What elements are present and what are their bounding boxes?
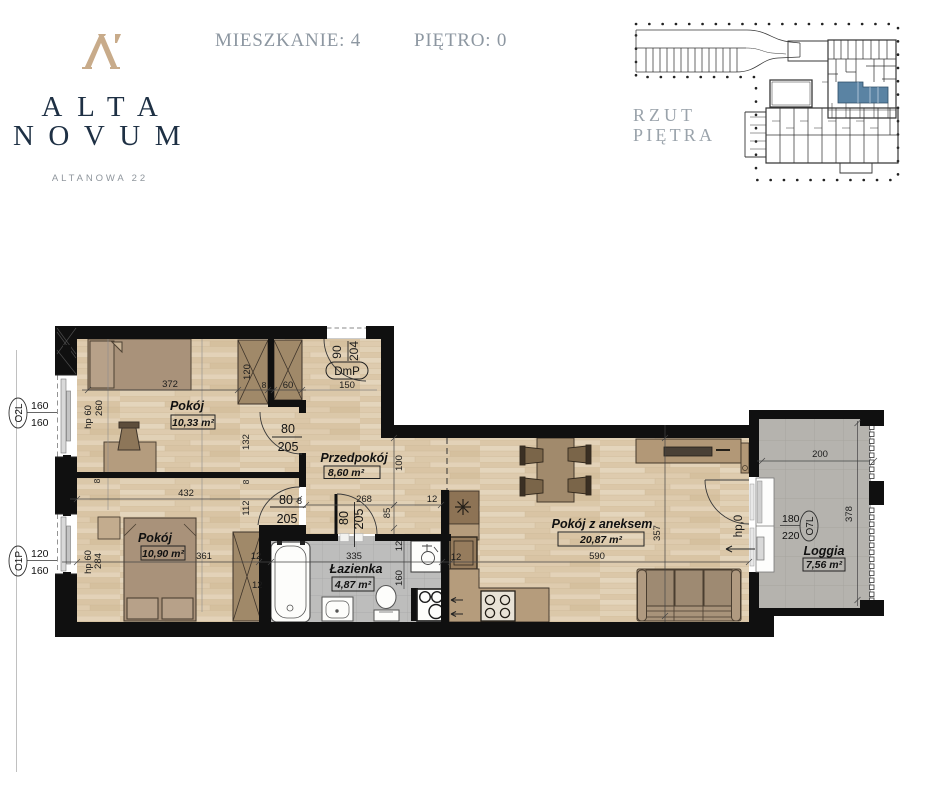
svg-text:7,56 m²: 7,56 m² [806, 559, 843, 571]
svg-text:150: 150 [339, 380, 355, 391]
svg-text:DmP: DmP [334, 366, 360, 378]
svg-text:90: 90 [330, 345, 344, 359]
svg-text:12: 12 [252, 580, 263, 591]
svg-text:20,87 m²: 20,87 m² [579, 534, 623, 546]
svg-text:O1P: O1P [14, 551, 25, 571]
svg-text:12: 12 [427, 494, 438, 505]
svg-text:590: 590 [589, 551, 605, 562]
svg-text:PIĘTRO: 0: PIĘTRO: 0 [414, 30, 507, 51]
svg-text:hp 60: hp 60 [83, 550, 94, 574]
svg-text:205: 205 [278, 440, 299, 454]
svg-text:432: 432 [178, 488, 194, 499]
svg-text:80: 80 [337, 511, 351, 525]
svg-text:284: 284 [93, 553, 104, 569]
svg-text:160: 160 [31, 400, 49, 412]
svg-text:8: 8 [262, 380, 267, 390]
svg-text:ALTA: ALTA [41, 91, 172, 123]
svg-text:260: 260 [94, 400, 105, 416]
svg-text:Loggia: Loggia [804, 544, 845, 558]
svg-text:357: 357 [652, 525, 663, 541]
svg-text:O7L: O7L [805, 516, 816, 535]
svg-text:8: 8 [297, 496, 302, 506]
svg-text:8: 8 [92, 478, 102, 483]
svg-text:ALTANOWA 22: ALTANOWA 22 [52, 173, 148, 184]
svg-text:O2L: O2L [14, 403, 25, 422]
svg-text:10,90 m²: 10,90 m² [142, 548, 185, 560]
svg-text:hp,0: hp,0 [733, 515, 745, 537]
svg-text:132: 132 [241, 434, 252, 450]
svg-text:NOVUM: NOVUM [13, 120, 195, 152]
svg-text:100: 100 [394, 455, 405, 471]
svg-text:Pokój: Pokój [138, 531, 173, 545]
svg-text:204: 204 [347, 341, 361, 361]
svg-text:335: 335 [346, 551, 362, 562]
svg-text:160: 160 [394, 570, 405, 586]
svg-text:Pokój: Pokój [170, 399, 205, 413]
svg-text:378: 378 [844, 506, 855, 522]
svg-text:12: 12 [394, 541, 405, 552]
svg-text:268: 268 [356, 494, 372, 505]
svg-text:10,33 m²: 10,33 m² [172, 417, 215, 429]
svg-text:361: 361 [196, 551, 212, 562]
svg-text:80: 80 [281, 422, 295, 436]
svg-text:205: 205 [277, 512, 298, 526]
svg-text:PIĘTRA: PIĘTRA [633, 125, 715, 145]
svg-text:RZUT: RZUT [633, 105, 696, 125]
svg-text:160: 160 [31, 565, 49, 577]
svg-text:8,60 m²: 8,60 m² [328, 467, 365, 479]
svg-text:8: 8 [241, 479, 251, 484]
svg-text:120: 120 [31, 548, 49, 560]
svg-text:hp 60: hp 60 [83, 405, 94, 429]
svg-text:Łazienka: Łazienka [329, 562, 383, 576]
svg-text:12: 12 [251, 551, 262, 562]
svg-text:Pokój z aneksem: Pokój z aneksem [552, 517, 653, 531]
svg-text:220: 220 [782, 530, 800, 542]
svg-text:160: 160 [31, 417, 49, 429]
svg-text:200: 200 [812, 449, 828, 460]
svg-text:60: 60 [283, 380, 294, 391]
svg-text:4,87 m²: 4,87 m² [334, 579, 372, 591]
svg-text:Przedpokój: Przedpokój [320, 451, 388, 465]
svg-text:372: 372 [162, 379, 178, 390]
svg-text:85: 85 [382, 508, 393, 519]
svg-text:112: 112 [241, 500, 252, 515]
svg-text:120: 120 [242, 364, 253, 380]
svg-text:MIESZKANIE: 4: MIESZKANIE: 4 [215, 30, 361, 51]
svg-text:180: 180 [782, 513, 800, 525]
svg-text:80: 80 [279, 493, 293, 507]
svg-text:12: 12 [451, 552, 462, 563]
svg-text:205: 205 [352, 509, 366, 530]
